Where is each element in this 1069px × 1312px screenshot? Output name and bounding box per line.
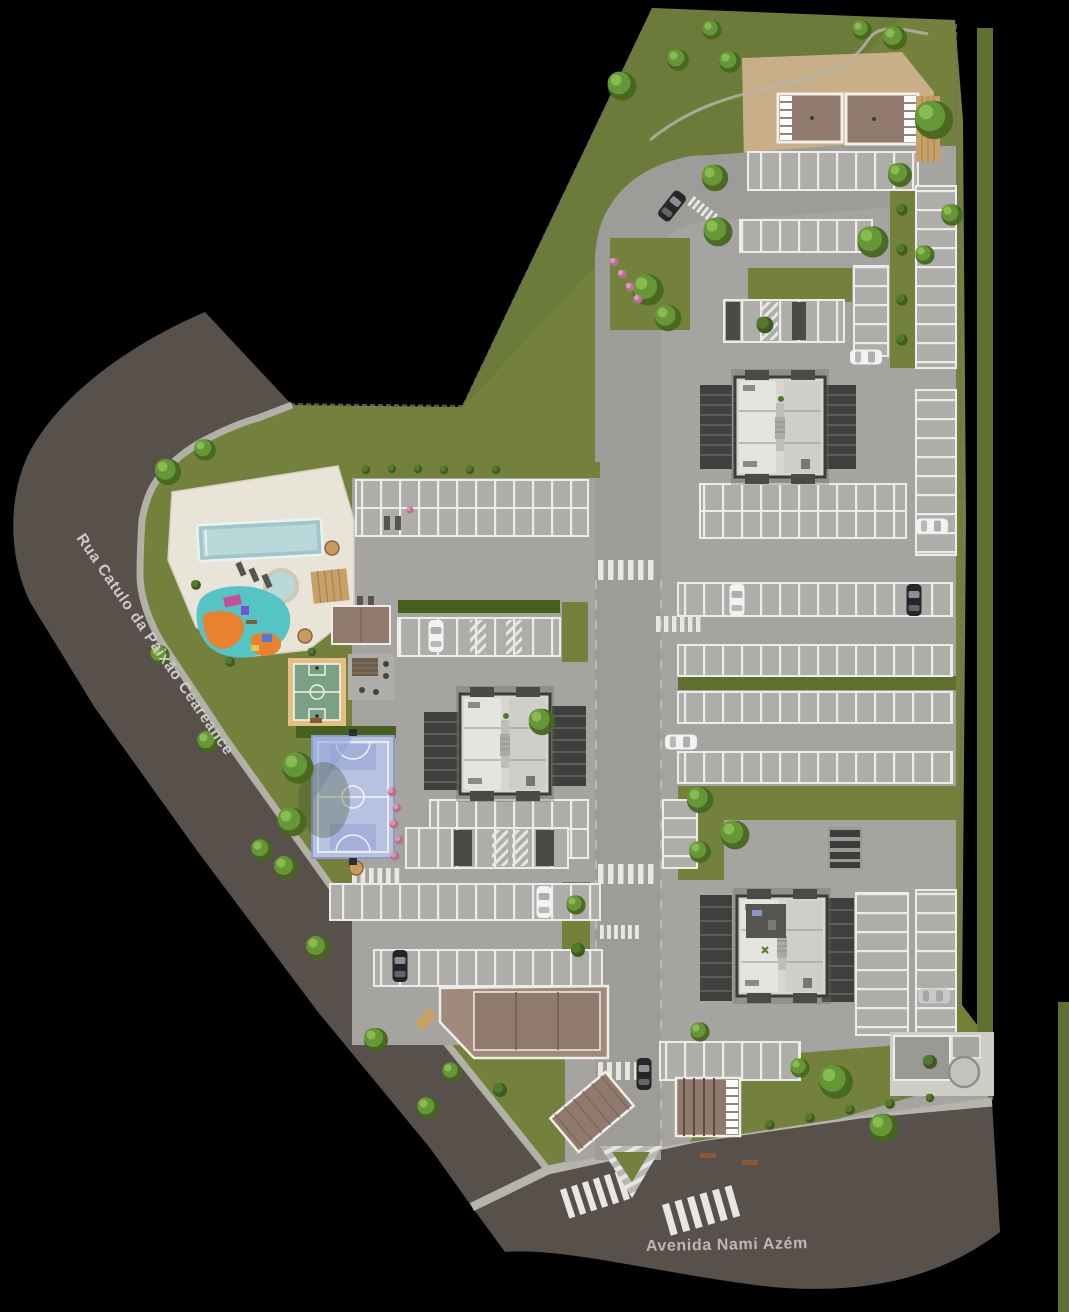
tree-icon: [442, 1062, 461, 1081]
flower-icon: [618, 270, 627, 279]
tree-icon: [194, 439, 216, 461]
tree-icon: [417, 1097, 439, 1119]
bush-icon: [191, 580, 201, 590]
car: [665, 735, 697, 750]
grass-verge: [562, 602, 588, 662]
top-gatehouse-2: [846, 94, 918, 144]
site-plan-svg: Rua Catulo da Paixão Ceareance Avenida N…: [0, 0, 1069, 1312]
tree-icon: [655, 305, 681, 331]
pool-equipment-building: [332, 606, 390, 644]
bush-icon: [362, 466, 370, 474]
hedge-row: [398, 600, 560, 613]
tree-icon: [278, 808, 307, 837]
bush-icon: [896, 244, 907, 255]
bush-icon: [885, 1099, 895, 1109]
tree-icon: [819, 1065, 853, 1099]
bush-icon: [926, 1094, 934, 1102]
car: [429, 620, 444, 652]
flower-icon: [634, 295, 643, 304]
street-label-avenida: Avenida Nami Azém: [646, 1235, 808, 1255]
parking-column: [854, 266, 888, 356]
tree-icon: [282, 752, 313, 783]
tree-icon: [852, 20, 871, 39]
bush-icon: [492, 466, 500, 474]
party-hall: [440, 986, 608, 1058]
bush-icon: [765, 1120, 775, 1130]
grass-patch: [748, 268, 852, 302]
car: [918, 989, 950, 1004]
lap-pool: [197, 519, 323, 561]
bush-icon: [308, 648, 316, 656]
tree-icon: [704, 218, 733, 247]
parking-row: [406, 828, 452, 868]
parking-row: [700, 484, 906, 538]
car: [637, 1058, 652, 1090]
tree-icon: [941, 204, 963, 226]
tree-icon: [689, 841, 711, 863]
bush-icon: [571, 943, 585, 957]
entrance-building: [676, 1078, 740, 1136]
site-plan-image: Rua Catulo da Paixão Ceareance Avenida N…: [0, 0, 1069, 1312]
parking-row-accessible: [724, 300, 844, 342]
grass-strip: [678, 786, 956, 820]
wood-deck: [310, 568, 349, 604]
basketball-court: [288, 658, 346, 726]
tree-icon: [870, 1114, 899, 1143]
edge-green-sliver: [1058, 1002, 1069, 1312]
bush-icon: [388, 465, 396, 473]
parking-row: [678, 752, 952, 783]
parking-row: [660, 1042, 800, 1080]
tree-icon: [274, 856, 298, 880]
car: [730, 584, 745, 616]
parking-column: [916, 890, 956, 1036]
car: [537, 886, 552, 918]
bush-icon: [757, 317, 774, 334]
parking-row: [678, 645, 952, 676]
multisport-court: [298, 729, 394, 865]
flower-icon: [626, 283, 635, 292]
bush-icon: [225, 657, 235, 667]
parking-column: [856, 893, 908, 1035]
tree-icon: [364, 1028, 388, 1052]
tree-icon: [888, 163, 912, 187]
building-dark-room: [746, 904, 786, 938]
bbq-pergola-area: [348, 654, 394, 700]
parking-row-accessible: [398, 618, 560, 656]
car: [393, 950, 408, 982]
bush-icon: [845, 1105, 855, 1115]
tree-icon: [251, 839, 273, 861]
apartment-building-1: [731, 369, 829, 485]
tree-icon: [790, 1058, 809, 1077]
flower-icon: [610, 258, 619, 267]
bush-icon: [466, 466, 474, 474]
bush-icon: [414, 465, 422, 473]
bush-icon: [923, 1055, 937, 1069]
tree-icon: [721, 821, 750, 850]
tree-icon: [702, 165, 728, 191]
hedge-strip: [678, 676, 956, 690]
apartment-building-2: [456, 686, 554, 802]
utility-building: [890, 1032, 994, 1096]
car: [907, 584, 922, 616]
parking-row: [330, 884, 600, 920]
motorcycle-stalls: [828, 827, 862, 869]
top-gatehouse-1: [778, 94, 842, 142]
bush-icon: [896, 294, 907, 305]
tree-icon: [702, 20, 721, 39]
tree-icon: [883, 26, 907, 50]
bush-icon: [896, 204, 907, 215]
bush-icon: [493, 1083, 507, 1097]
parking-row: [740, 220, 872, 252]
playground: [196, 586, 290, 657]
tree-icon: [667, 49, 689, 71]
parking-row: [374, 950, 602, 986]
tree-icon: [566, 895, 585, 914]
bush-icon: [440, 466, 448, 474]
parking-row-accessible: [452, 828, 568, 868]
bush-icon: [805, 1113, 815, 1123]
tree-icon: [719, 51, 741, 73]
tree-icon: [690, 1022, 709, 1041]
parking-row: [356, 480, 588, 536]
tree-icon: [915, 245, 934, 264]
tree-icon: [915, 101, 953, 139]
tree-icon: [857, 226, 888, 257]
bush-icon: [896, 334, 907, 345]
outer-hedge-strip: [977, 28, 993, 1100]
water-tank: [949, 1057, 979, 1087]
tree-icon: [687, 787, 713, 813]
tree-icon: [155, 459, 181, 485]
car: [916, 519, 948, 534]
tree-icon: [529, 709, 555, 735]
tree-icon: [306, 936, 330, 960]
tree-icon: [608, 72, 637, 101]
car: [850, 350, 882, 365]
parking-row: [678, 692, 952, 723]
